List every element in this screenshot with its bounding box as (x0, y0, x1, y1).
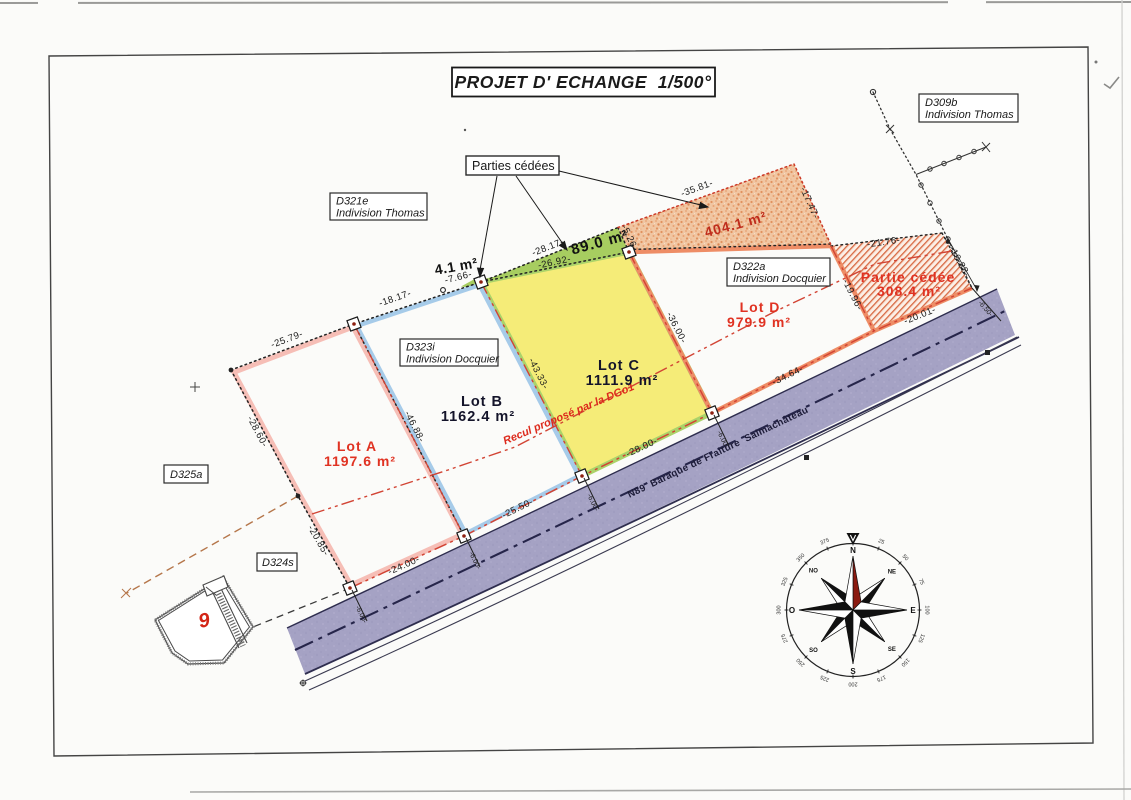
svg-text:D325a: D325a (170, 469, 202, 481)
svg-text:100: 100 (924, 605, 930, 614)
svg-text:NE: NE (888, 569, 896, 575)
svg-text:Indivision Docquier: Indivision Docquier (406, 354, 500, 366)
svg-text:D309b: D309b (925, 97, 957, 109)
svg-text:300: 300 (777, 605, 783, 614)
svg-text:Lot A: Lot A (337, 438, 377, 454)
svg-text:SO: SO (809, 648, 818, 654)
svg-text:Lot D: Lot D (740, 299, 781, 315)
svg-text:O: O (789, 606, 795, 615)
svg-text:200: 200 (848, 681, 857, 687)
svg-text:1197.6 m²: 1197.6 m² (324, 453, 396, 469)
svg-text:979.9 m²: 979.9 m² (727, 314, 791, 330)
svg-text:Lot C: Lot C (598, 358, 640, 374)
svg-text:NO: NO (809, 569, 818, 575)
svg-text:Indivision Docquier: Indivision Docquier (733, 273, 827, 285)
svg-text:N: N (850, 546, 856, 555)
svg-text:Indivision Thomas: Indivision Thomas (336, 208, 425, 220)
svg-text:S: S (850, 667, 856, 676)
svg-text:E: E (910, 606, 916, 615)
svg-text:D324s: D324s (262, 557, 294, 569)
svg-text:Lot B: Lot B (461, 394, 503, 410)
svg-text:308.4 m²: 308.4 m² (877, 283, 941, 299)
svg-text:D322a: D322a (733, 261, 765, 273)
svg-text:Parties cédées: Parties cédées (472, 159, 555, 173)
svg-text:1111.9 m²: 1111.9 m² (586, 373, 659, 389)
svg-text:D323i: D323i (406, 342, 435, 354)
svg-text:PROJET D' ECHANGE 1/500°: PROJET D' ECHANGE 1/500° (454, 72, 712, 92)
svg-text:Indivision Thomas: Indivision Thomas (925, 109, 1014, 121)
svg-text:1162.4 m²: 1162.4 m² (441, 409, 515, 425)
svg-text:D321e: D321e (336, 196, 368, 208)
svg-text:SE: SE (888, 647, 896, 653)
